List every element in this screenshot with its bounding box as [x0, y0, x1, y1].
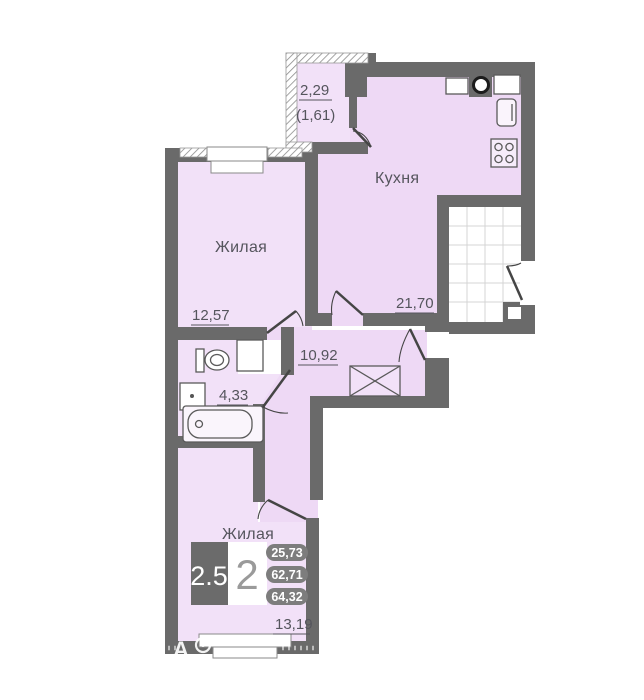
fridge-icon: [497, 99, 516, 126]
watermark-letter: А: [173, 637, 189, 662]
wall-balcony-top-hatched: [286, 53, 368, 63]
living2-window: [199, 634, 291, 647]
wall-entrance-bottom: [425, 358, 449, 408]
kitchen-name-label: Кухня: [375, 170, 419, 187]
shaft-box-icon: [237, 340, 263, 371]
living2-area-label: 13,19: [275, 616, 313, 633]
living1-area-label: 12,57: [192, 307, 230, 324]
wall-living1-bottom: [165, 327, 267, 340]
room-count-value: 2: [235, 551, 258, 598]
balcony-area-reduced-label: (1,61): [296, 107, 335, 124]
stairwell-wall-niche: [508, 307, 521, 319]
wall-left: [165, 148, 178, 654]
hallway-area-label: 10,92: [300, 347, 338, 364]
kitchen-area-label: 21,70: [396, 295, 434, 312]
washbasin-drain: [190, 394, 194, 398]
badge-area-2-value: 62,71: [271, 568, 302, 582]
toilet-tank-icon: [196, 349, 204, 372]
living1-name-label: Жилая: [215, 239, 267, 256]
floor-plan: 2,29 (1,61) Кухня 21,70 Жилая 12,57 10,9…: [0, 0, 644, 700]
living1-window: [207, 147, 267, 161]
watermark-ring-dot: [201, 643, 205, 647]
toilet-bowl-icon: [205, 350, 229, 370]
kitchen-counter-icon: [446, 78, 468, 94]
entrance-opening: [427, 332, 449, 358]
wall-corridor-right: [310, 396, 323, 500]
wall-living1-right: [305, 148, 318, 326]
wall-entrance-top: [425, 313, 449, 332]
stove-icon: [491, 139, 517, 167]
area-badges: 25,73 62,71 64,32: [266, 544, 308, 605]
wall-living1-hatch-left: [180, 148, 208, 157]
wall-living1-hatch-right: [268, 148, 302, 157]
kitchen-counter2-icon: [494, 75, 520, 94]
balcony-area-label: 2,29: [300, 82, 329, 99]
living2-name-label: Жилая: [222, 526, 274, 543]
wall-balcony-right-block: [345, 64, 367, 97]
badge-total-area-value: 64,32: [271, 590, 302, 604]
wall-balcony-door-jamb: [349, 97, 357, 128]
bathroom-area-label: 4,33: [219, 387, 248, 404]
living1-window-sill: [211, 161, 263, 173]
wall-kitchen-right: [521, 62, 535, 207]
living2-window-sill: [213, 647, 277, 658]
wall-hall-bottom: [312, 396, 429, 408]
floor-plan-svg: 2,29 (1,61) Кухня 21,70 Жилая 12,57 10,9…: [0, 0, 644, 700]
summary-box: 2.5 2 25,73 62,71 64,32: [190, 542, 308, 605]
kitchen-sink-icon: [474, 78, 489, 93]
wall-bathroom-right-upper: [281, 327, 294, 375]
badge-living-area-value: 25,73: [271, 546, 302, 560]
wall-balcony-left-hatched: [286, 53, 297, 152]
room-factor-value: 2.5: [190, 561, 228, 591]
